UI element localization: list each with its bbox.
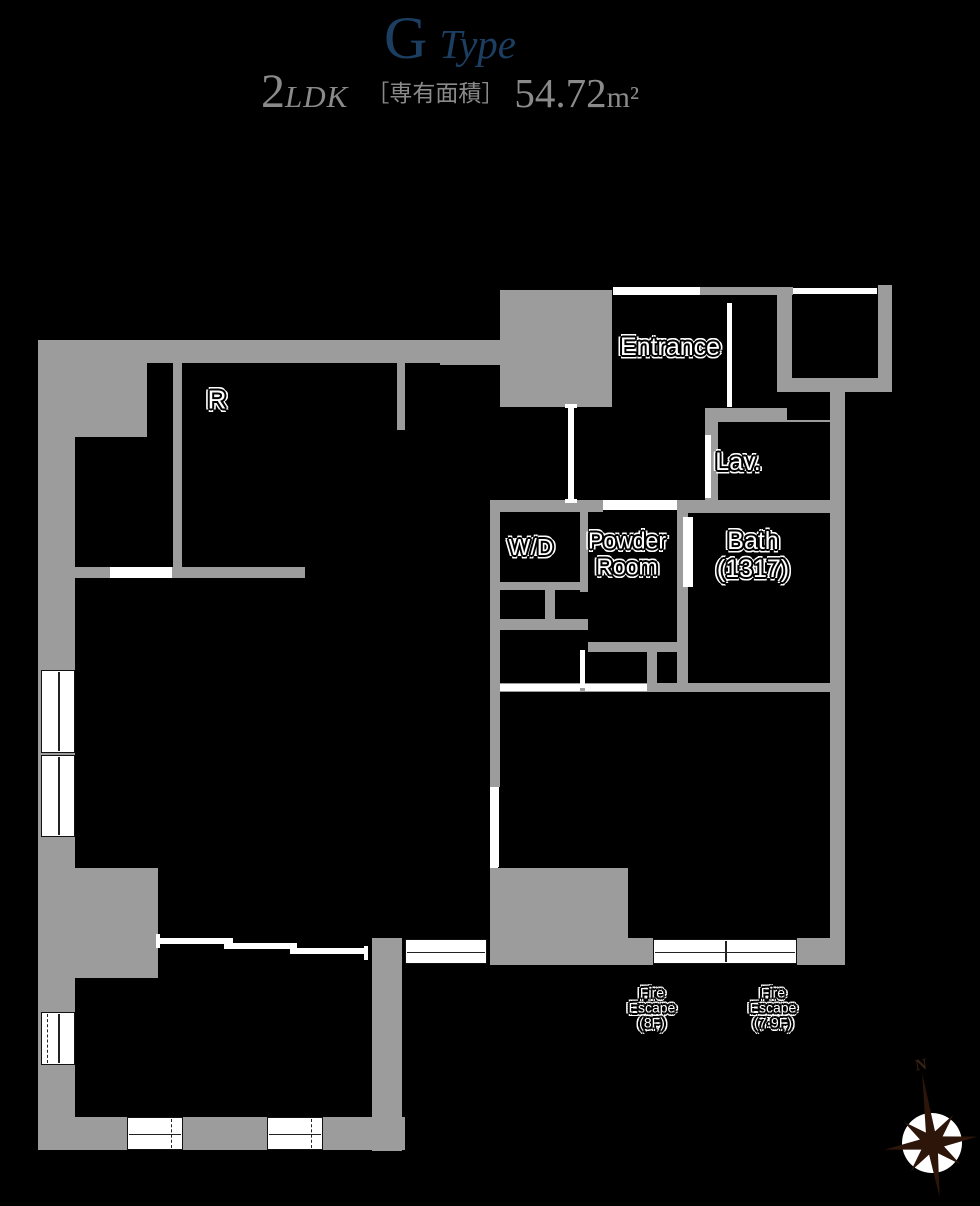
area-bracket-label: ［専有面積］ <box>366 81 504 106</box>
wall <box>545 590 555 622</box>
wall <box>490 500 500 787</box>
room-label-r: R <box>208 385 227 414</box>
type-letter: G <box>384 5 427 71</box>
door-opening <box>364 946 368 960</box>
door-opening <box>110 567 172 578</box>
window-dashed-line <box>47 1014 48 1063</box>
door-opening <box>613 287 700 295</box>
plan-type-title: GType <box>0 4 900 73</box>
door-opening <box>565 404 577 408</box>
wall <box>372 938 402 1151</box>
room-label-entrance: Entrance <box>620 333 720 361</box>
door-opening <box>565 499 577 503</box>
fire-escape-1-line1: Fire <box>629 986 676 1001</box>
window-rail <box>129 1134 181 1136</box>
compass-cardinal-star <box>875 1066 980 1204</box>
wall <box>490 582 588 590</box>
window-dashed-line <box>311 1119 312 1148</box>
wall-recess <box>787 392 830 420</box>
ldk-label: LDK <box>285 79 348 114</box>
fire-escape-2-line3: (7·9F) <box>750 1016 797 1031</box>
fire-escape-1-line2: Escape <box>629 1001 676 1016</box>
wall <box>580 512 588 592</box>
wall <box>777 290 792 382</box>
wall <box>490 868 628 965</box>
powder-room-line1: Powder <box>588 528 666 554</box>
door-opening <box>290 948 367 954</box>
wall-recess <box>147 363 173 437</box>
wall <box>490 619 588 630</box>
door-opening <box>156 934 160 948</box>
door-opening <box>490 859 498 868</box>
fire-escape-2-line1: Fire <box>750 986 797 1001</box>
room-label-lav: Lav. <box>715 448 760 476</box>
room-count: 2 <box>261 65 285 118</box>
fire-escape-2-line2: Escape <box>750 1001 797 1016</box>
door-opening <box>793 288 877 294</box>
door-opening <box>160 938 233 944</box>
window-mullion <box>725 941 727 962</box>
window-mullion <box>58 1014 60 1063</box>
window-rail <box>407 952 485 954</box>
room-label-wd: W/D <box>509 535 554 561</box>
fire-escape-79f-label: Fire Escape (7·9F) <box>750 986 797 1031</box>
room-label-bath: Bath (1317) <box>717 527 789 583</box>
fire-escape-1-line3: (8F) <box>629 1016 676 1031</box>
wall <box>588 642 683 652</box>
area-unit: m² <box>607 81 639 114</box>
wall <box>777 378 892 392</box>
window-rail <box>269 1134 321 1136</box>
wall <box>397 363 405 430</box>
door-opening <box>500 684 580 691</box>
compass-rose: N <box>865 1056 980 1206</box>
bath-line2: (1317) <box>717 555 789 583</box>
window-dashed-line <box>171 1119 172 1148</box>
plan-subtitle: 2LDK［専有面積］54.72m² <box>0 64 900 119</box>
door-opening <box>568 407 574 501</box>
powder-room-line2: Room <box>588 554 666 580</box>
door-opening <box>683 517 693 587</box>
door-opening <box>585 684 647 691</box>
door-opening <box>727 303 732 407</box>
door-opening <box>490 787 499 867</box>
wall <box>797 938 844 965</box>
wall <box>677 500 830 513</box>
window-mullion <box>58 672 60 751</box>
compass-north-label: N <box>914 1056 928 1074</box>
floor-plan-page: { "title": { "letter": "G", "word": "Typ… <box>0 0 980 1194</box>
wall <box>830 392 845 965</box>
area-value: 54.72 <box>514 70 606 116</box>
wall <box>440 342 500 365</box>
wall <box>38 340 505 363</box>
wall <box>75 868 158 978</box>
floor-plan: R Entrance Lav. W/D Powder Room Bath (13… <box>0 0 980 1194</box>
type-word: Type <box>439 21 516 67</box>
wall <box>75 363 147 437</box>
wall <box>628 938 653 965</box>
door-opening <box>603 500 677 510</box>
wall <box>38 1117 405 1150</box>
window-mullion <box>58 757 60 835</box>
room-label-powder-room: Powder Room <box>588 528 666 580</box>
door-opening <box>705 435 711 498</box>
wall <box>500 290 612 407</box>
door-opening <box>224 943 297 949</box>
bath-line1: Bath <box>717 527 789 555</box>
fire-escape-8f-label: Fire Escape (8F) <box>629 986 676 1031</box>
wall <box>173 363 182 578</box>
wall <box>878 285 892 392</box>
door-opening <box>580 650 585 688</box>
wall <box>490 500 603 512</box>
